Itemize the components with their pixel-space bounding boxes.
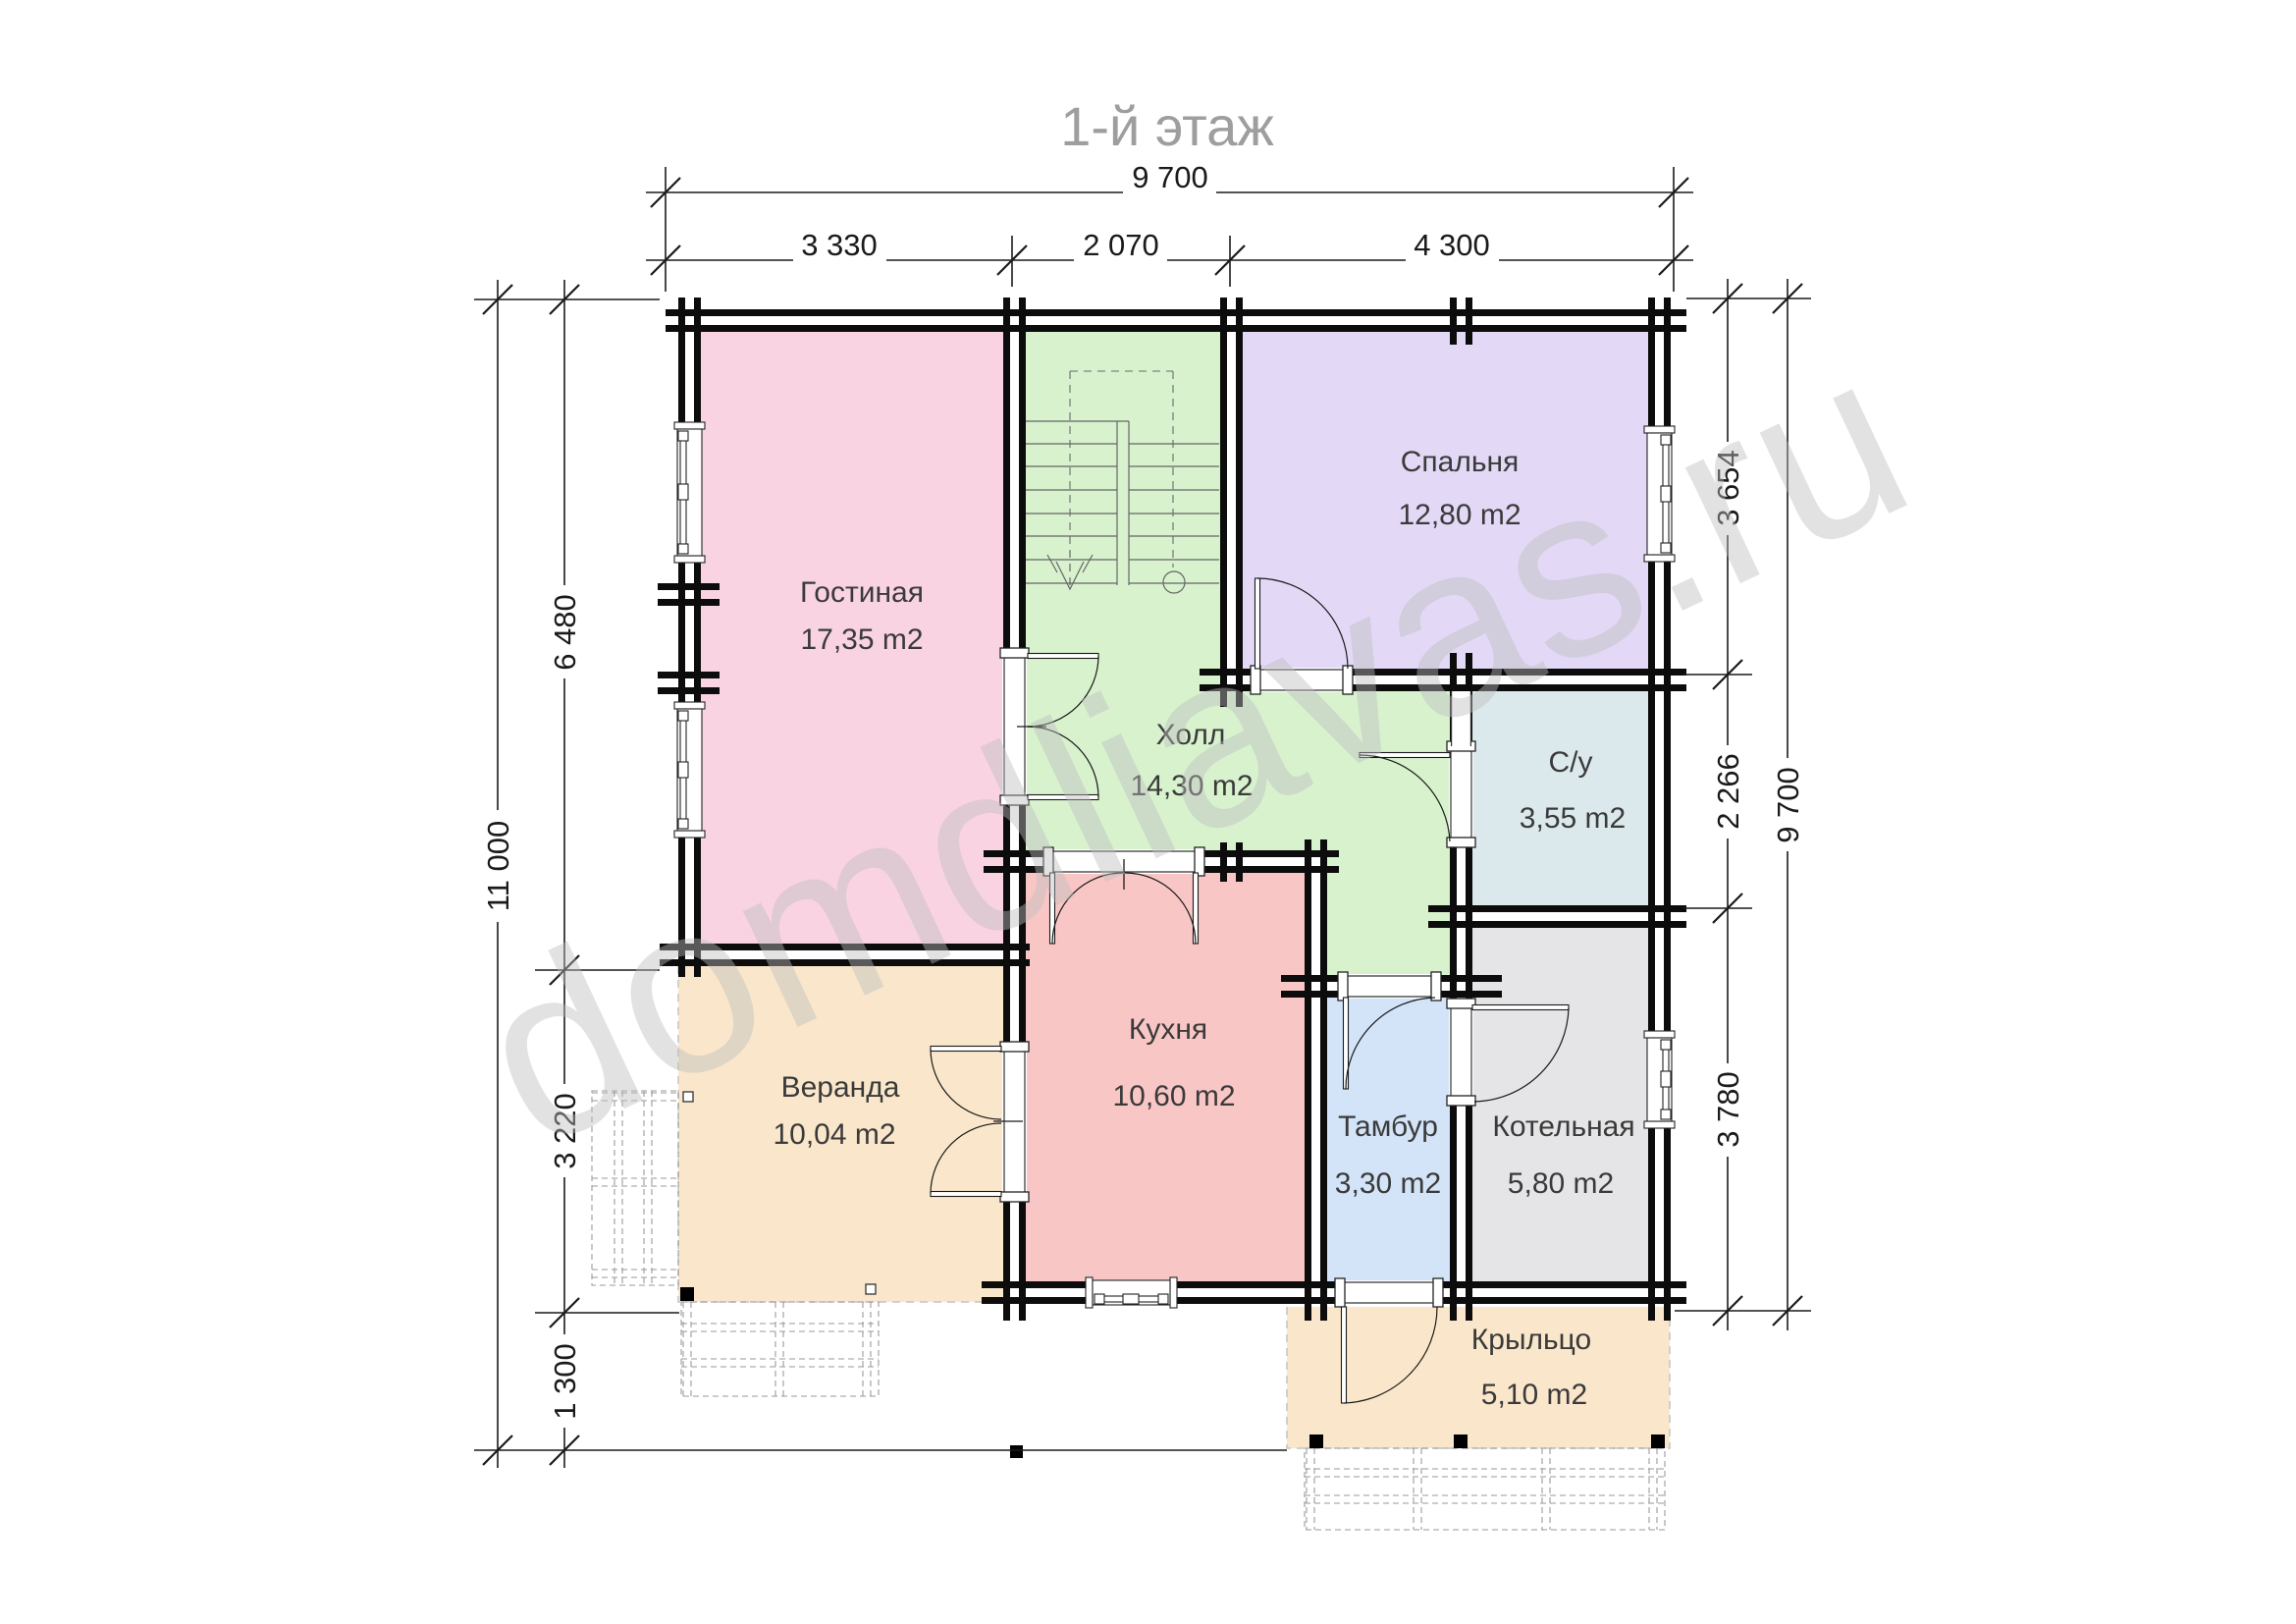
svg-text:Тамбур: Тамбур	[1338, 1110, 1438, 1143]
svg-text:1 300: 1 300	[548, 1343, 582, 1420]
svg-text:9 700: 9 700	[1132, 160, 1208, 194]
svg-text:Гостиная: Гостиная	[800, 576, 924, 609]
svg-text:3 330: 3 330	[801, 228, 878, 262]
svg-text:4 300: 4 300	[1414, 228, 1490, 262]
svg-text:1-й этаж: 1-й этаж	[1060, 95, 1274, 157]
svg-text:5,10 m2: 5,10 m2	[1481, 1379, 1587, 1411]
svg-text:Крыльцо: Крыльцо	[1471, 1324, 1591, 1356]
svg-text:10,60 m2: 10,60 m2	[1112, 1080, 1235, 1112]
svg-text:10,04 m2: 10,04 m2	[773, 1118, 895, 1151]
svg-text:Кухня: Кухня	[1129, 1013, 1207, 1046]
svg-text:2 266: 2 266	[1711, 753, 1745, 830]
svg-text:3 780: 3 780	[1711, 1071, 1745, 1148]
svg-text:11 000: 11 000	[481, 821, 515, 912]
svg-text:С/у: С/у	[1549, 746, 1593, 779]
svg-text:6 480: 6 480	[548, 594, 582, 671]
svg-text:17,35 m2: 17,35 m2	[800, 623, 923, 656]
svg-text:9 700: 9 700	[1771, 767, 1805, 843]
svg-text:5,80 m2: 5,80 m2	[1508, 1167, 1614, 1200]
svg-text:3,55 m2: 3,55 m2	[1520, 802, 1626, 835]
svg-text:Котельная: Котельная	[1492, 1110, 1634, 1143]
svg-text:3,30 m2: 3,30 m2	[1335, 1167, 1441, 1200]
svg-text:2 070: 2 070	[1083, 228, 1159, 262]
